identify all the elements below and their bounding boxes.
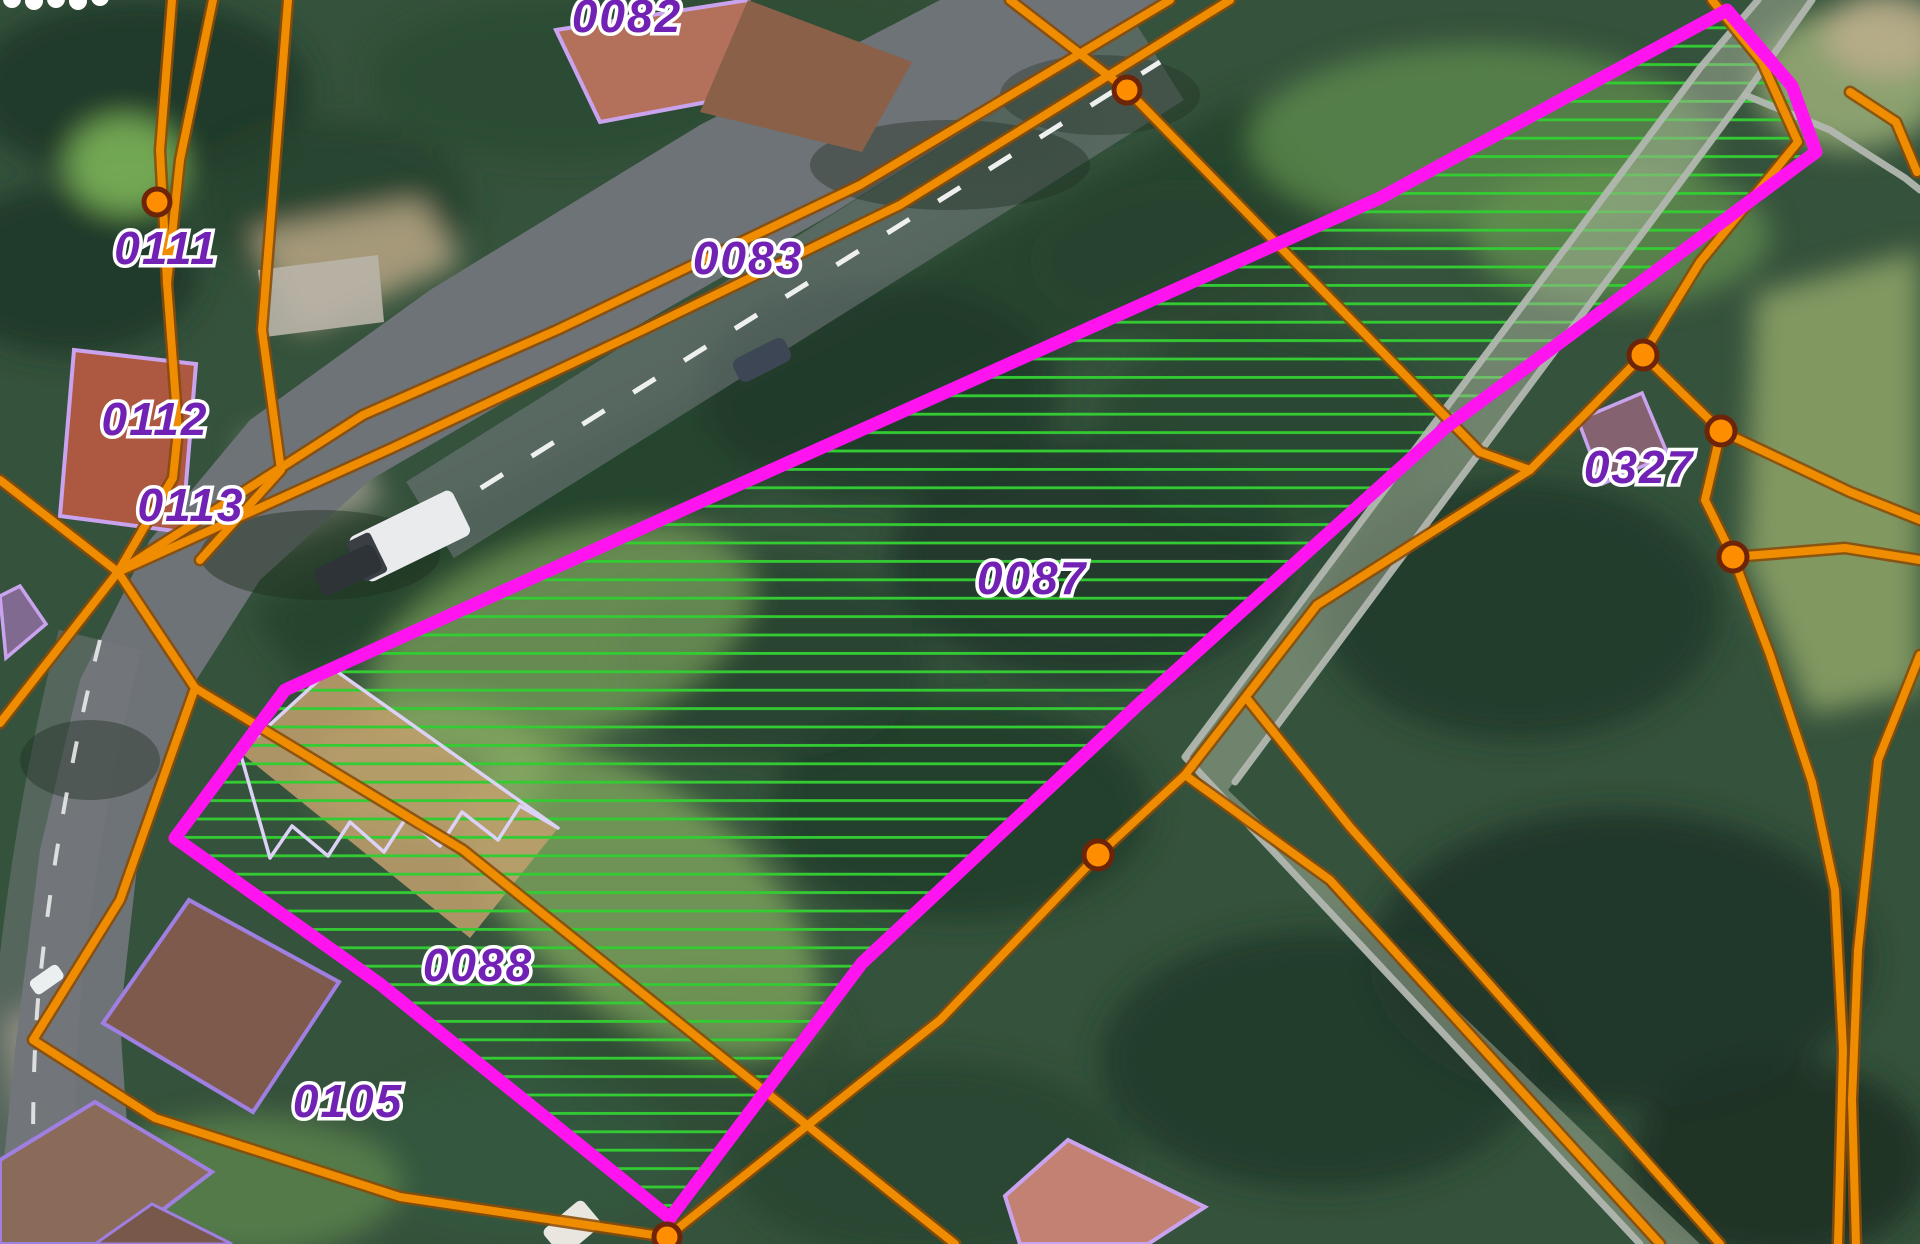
- map-canvas: 0082 0083 0111 0112 0113 0087 0088 0105 …: [0, 0, 1920, 1244]
- parcel-label-0113: 0113: [138, 479, 245, 531]
- parcel-label-0112: 0112: [102, 393, 209, 445]
- parcel-label-0087: 0087: [977, 552, 1088, 604]
- parcel-label-0088: 0088: [423, 939, 533, 991]
- parcel-label-0083: 0083: [693, 232, 803, 284]
- parcel-label-0111: 0111: [114, 222, 218, 274]
- parcel-label-0105: 0105: [293, 1075, 403, 1127]
- parcel-vertex-dot: [1629, 341, 1657, 369]
- parcel-vertex-dot: [1719, 543, 1747, 571]
- parcel-vertex-dot: [144, 189, 170, 215]
- parcel-vertex-dot: [1084, 841, 1112, 869]
- parcel-label-0082: 0082: [572, 0, 682, 42]
- parcel-vertex-dot: [654, 1224, 680, 1244]
- parcel-vertex-dot: [1114, 77, 1140, 103]
- parcel-label-0327: 0327: [1584, 441, 1695, 493]
- cadastral-map-view[interactable]: 0082 0083 0111 0112 0113 0087 0088 0105 …: [0, 0, 1920, 1244]
- parcel-vertex-dot: [1707, 417, 1735, 445]
